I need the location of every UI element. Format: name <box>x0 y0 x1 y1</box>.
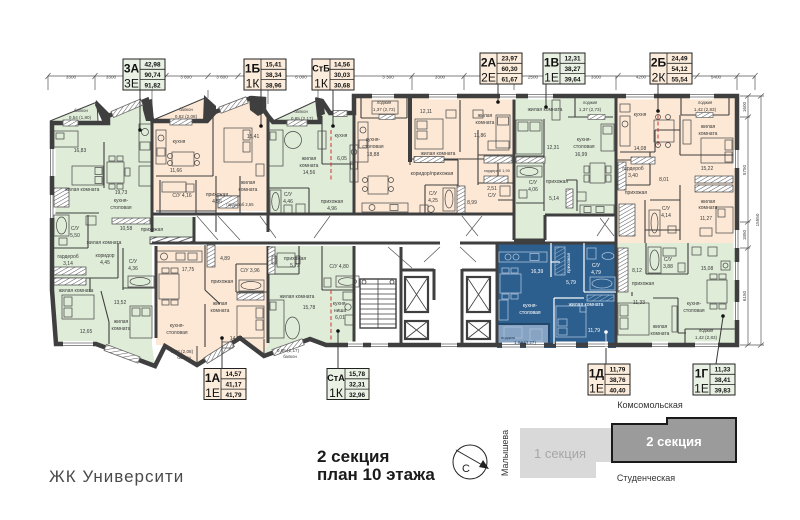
svg-text:12,11: 12,11 <box>420 109 432 115</box>
svg-text:4,46: 4,46 <box>283 199 293 205</box>
svg-text:4,45: 4,45 <box>100 260 110 266</box>
svg-text:38,34: 38,34 <box>266 72 282 79</box>
svg-text:11,27: 11,27 <box>700 216 712 222</box>
svg-text:1А: 1А <box>205 371 221 385</box>
svg-text:жилая комната: жилая комната <box>59 288 94 294</box>
svg-text:жилая комната: жилая комната <box>65 187 100 193</box>
svg-text:14,57: 14,57 <box>226 371 242 378</box>
svg-text:2 секция: 2 секция <box>317 447 389 466</box>
svg-text:жилая: жилая <box>701 124 716 130</box>
svg-text:5,79: 5,79 <box>566 280 576 286</box>
svg-text:план 10 этажа: план 10 этажа <box>317 465 435 484</box>
svg-text:14,56: 14,56 <box>303 170 316 176</box>
svg-text:1К: 1К <box>329 386 343 400</box>
svg-text:8,99: 8,99 <box>467 200 477 206</box>
svg-text:4200: 4200 <box>636 75 647 80</box>
svg-text:1Г: 1Г <box>695 367 709 381</box>
svg-text:23,97: 23,97 <box>502 56 518 63</box>
svg-text:1Е: 1Е <box>694 382 709 396</box>
svg-text:балкон: балкон <box>177 355 191 360</box>
svg-text:3 600: 3 600 <box>180 75 192 80</box>
svg-text:4,89: 4,89 <box>220 256 230 262</box>
svg-text:5400: 5400 <box>711 75 722 80</box>
svg-text:кухня-: кухня- <box>170 323 185 329</box>
svg-text:5,72: 5,72 <box>290 263 300 269</box>
svg-text:1 секция: 1 секция <box>534 446 586 461</box>
svg-text:12,31: 12,31 <box>547 145 560 151</box>
svg-text:38,96: 38,96 <box>266 82 282 89</box>
svg-text:С/У 4,80: С/У 4,80 <box>329 264 349 270</box>
svg-text:комната: комната <box>699 131 718 137</box>
svg-text:комната: комната <box>239 187 258 193</box>
svg-text:2 секция: 2 секция <box>646 434 701 449</box>
svg-text:18,88: 18,88 <box>367 152 380 158</box>
svg-text:С/У 4,16: С/У 4,16 <box>172 193 192 199</box>
svg-text:Комсомольская: Комсомольская <box>617 400 683 410</box>
svg-text:коридор/прихожая: коридор/прихожая <box>411 171 454 177</box>
svg-text:столовая: столовая <box>683 308 705 314</box>
svg-text:1К: 1К <box>314 77 328 91</box>
svg-text:0,54 (1,80): 0,54 (1,80) <box>69 115 92 120</box>
svg-text:0,65 (2,17): 0,65 (2,17) <box>277 348 300 353</box>
svg-text:4,06: 4,06 <box>528 187 538 193</box>
svg-text:лоджия: лоджия <box>501 335 515 340</box>
svg-text:комната: комната <box>651 331 670 337</box>
svg-text:2А: 2А <box>481 56 497 70</box>
svg-text:54,12: 54,12 <box>672 66 688 73</box>
svg-text:4,56: 4,56 <box>212 199 222 205</box>
svg-text:2К: 2К <box>652 71 666 85</box>
svg-text:3,40: 3,40 <box>628 173 638 179</box>
svg-text:38,41: 38,41 <box>715 377 731 384</box>
svg-text:прихожая: прихожая <box>546 179 569 185</box>
svg-text:15,08: 15,08 <box>701 266 714 272</box>
svg-text:0,62 (2,08): 0,62 (2,08) <box>175 114 198 119</box>
svg-text:0,62 (2,08): 0,62 (2,08) <box>171 349 194 354</box>
svg-text:балкон: балкон <box>283 354 297 359</box>
svg-text:1,37 (2,73): 1,37 (2,73) <box>373 107 396 112</box>
svg-text:41,79: 41,79 <box>226 392 242 399</box>
svg-text:6 000: 6 000 <box>295 75 307 80</box>
svg-text:прихожая: прихожая <box>625 190 648 196</box>
svg-text:1В: 1В <box>544 56 560 70</box>
svg-text:комната: комната <box>476 120 495 126</box>
svg-text:8,01: 8,01 <box>659 177 669 183</box>
svg-text:5750: 5750 <box>742 164 747 175</box>
svg-text:3Е: 3Е <box>124 77 139 91</box>
svg-text:12,31: 12,31 <box>565 56 581 63</box>
svg-text:лоджия: лоджия <box>698 100 713 105</box>
svg-text:11,33: 11,33 <box>715 367 731 374</box>
svg-text:столовая: столовая <box>573 144 595 150</box>
svg-text:1Е: 1Е <box>544 71 559 85</box>
svg-text:Малышева: Малышева <box>500 430 510 476</box>
svg-text:61,67: 61,67 <box>502 76 518 83</box>
svg-text:жилая: жилая <box>478 113 493 119</box>
svg-text:С: С <box>462 463 470 475</box>
svg-text:2Е: 2Е <box>481 71 496 85</box>
svg-text:11,33: 11,33 <box>633 300 645 306</box>
svg-text:5,50: 5,50 <box>70 233 80 239</box>
svg-text:4,14: 4,14 <box>661 213 671 219</box>
svg-text:32,31: 32,31 <box>349 382 365 389</box>
svg-text:3300: 3300 <box>66 75 77 80</box>
svg-text:комната: комната <box>112 326 131 332</box>
svg-text:лоджия: лоджия <box>377 100 392 105</box>
svg-text:19,73: 19,73 <box>115 190 128 196</box>
svg-text:С/У: С/У <box>129 259 138 265</box>
svg-text:60,30: 60,30 <box>502 66 518 73</box>
svg-text:комната: комната <box>300 163 319 169</box>
svg-text:С/У: С/У <box>429 191 438 197</box>
svg-text:гардероб: гардероб <box>622 166 643 172</box>
svg-text:С/У: С/У <box>284 192 293 198</box>
svg-text:1Д: 1Д <box>589 367 605 381</box>
svg-text:С/У: С/У <box>662 206 671 212</box>
svg-text:11,79: 11,79 <box>610 367 626 374</box>
svg-text:комната: комната <box>699 205 718 211</box>
svg-text:жилая: жилая <box>241 180 256 186</box>
svg-text:42,98: 42,98 <box>145 62 161 69</box>
svg-text:кухня-: кухня- <box>577 137 592 143</box>
svg-text:39,83: 39,83 <box>715 387 731 394</box>
svg-text:3 300: 3 300 <box>382 75 394 80</box>
svg-text:столовая: столовая <box>519 310 541 316</box>
svg-text:3,88: 3,88 <box>663 264 673 270</box>
svg-text:столовая: столовая <box>166 330 188 336</box>
svg-text:жилая: жилая <box>653 324 668 330</box>
svg-text:кухня-: кухня- <box>333 301 348 307</box>
svg-text:3 600: 3 600 <box>216 75 228 80</box>
svg-text:4,79: 4,79 <box>591 270 601 276</box>
svg-text:15,41: 15,41 <box>247 134 260 140</box>
svg-text:жилая комната: жилая комната <box>87 240 122 246</box>
svg-text:15550: 15550 <box>755 213 760 226</box>
svg-text:3,14: 3,14 <box>63 261 73 267</box>
svg-text:1Б: 1Б <box>245 62 261 76</box>
svg-text:жилая: жилая <box>213 301 228 307</box>
svg-text:Студенческая: Студенческая <box>617 473 675 483</box>
svg-text:55,54: 55,54 <box>672 76 688 83</box>
svg-text:15,78: 15,78 <box>349 371 365 378</box>
svg-text:прихожая: прихожая <box>566 252 571 273</box>
svg-text:прихожая: прихожая <box>141 227 164 233</box>
svg-text:41,17: 41,17 <box>226 382 242 389</box>
svg-text:24,49: 24,49 <box>672 56 688 63</box>
svg-text:гардероб 2,55: гардероб 2,55 <box>226 202 254 207</box>
svg-text:балкон: балкон <box>179 107 193 112</box>
svg-text:6,01: 6,01 <box>335 315 345 321</box>
svg-text:16,83: 16,83 <box>74 148 87 154</box>
svg-text:кухня: кухня <box>335 133 348 139</box>
svg-text:столовая: столовая <box>110 205 132 211</box>
svg-text:0,65 (2,17): 0,65 (2,17) <box>291 116 314 121</box>
svg-text:2,51: 2,51 <box>487 186 497 192</box>
svg-text:кухня: кухня <box>634 112 647 118</box>
svg-text:2500: 2500 <box>528 75 539 80</box>
svg-text:30,03: 30,03 <box>334 72 350 79</box>
svg-text:4,96: 4,96 <box>327 206 337 212</box>
svg-text:лоджия: лоджия <box>699 328 714 333</box>
svg-text:СтА: СтА <box>327 373 345 383</box>
svg-text:1,64 (3,27): 1,64 (3,27) <box>514 340 536 345</box>
svg-text:5,14: 5,14 <box>549 196 559 202</box>
svg-text:СтБ: СтБ <box>312 64 330 74</box>
svg-text:14,08: 14,08 <box>634 146 647 152</box>
svg-text:1Е: 1Е <box>205 386 220 400</box>
svg-text:С/У: С/У <box>592 263 601 269</box>
svg-text:жилая: жилая <box>302 156 317 162</box>
svg-text:1Е: 1Е <box>589 382 604 396</box>
svg-text:кухня-: кухня- <box>687 301 702 307</box>
svg-text:1850: 1850 <box>742 229 747 240</box>
svg-text:11,79: 11,79 <box>588 328 600 334</box>
svg-text:ЖК Университи: ЖК Университи <box>49 467 184 486</box>
svg-text:1,42 (2,83): 1,42 (2,83) <box>695 335 718 340</box>
svg-text:кухня-: кухня- <box>114 198 129 204</box>
svg-text:15,41: 15,41 <box>266 62 282 69</box>
svg-text:91,82: 91,82 <box>145 82 161 89</box>
svg-text:38,27: 38,27 <box>565 66 581 73</box>
svg-text:гардероб: гардероб <box>57 254 78 260</box>
svg-text:32,96: 32,96 <box>349 392 365 399</box>
svg-text:жилая комната: жилая комната <box>569 302 604 308</box>
svg-text:6150: 6150 <box>742 290 747 301</box>
svg-text:13,52: 13,52 <box>114 300 127 306</box>
svg-text:14,56: 14,56 <box>334 62 350 69</box>
svg-text:С/У: С/У <box>664 257 673 263</box>
svg-text:коридор: коридор <box>95 253 114 259</box>
svg-text:1,37 (2,73): 1,37 (2,73) <box>579 107 602 112</box>
svg-text:12,65: 12,65 <box>80 329 93 335</box>
svg-text:комната: комната <box>211 308 230 314</box>
svg-text:жилая: жилая <box>114 319 129 325</box>
svg-text:8,12: 8,12 <box>632 268 642 274</box>
svg-text:прихожая: прихожая <box>211 279 234 285</box>
svg-text:прихожая: прихожая <box>284 256 307 262</box>
svg-text:3300: 3300 <box>106 75 117 80</box>
svg-text:балкон: балкон <box>74 108 88 113</box>
svg-text:15,22: 15,22 <box>701 166 714 172</box>
svg-text:15,78: 15,78 <box>303 305 316 311</box>
svg-text:С/У: С/У <box>529 180 538 186</box>
svg-text:гардероб 1,90: гардероб 1,90 <box>484 168 511 173</box>
svg-text:ниша: ниша <box>334 308 347 314</box>
svg-text:4,25: 4,25 <box>428 198 438 204</box>
svg-text:С/У: С/У <box>71 226 80 232</box>
svg-text:16,39: 16,39 <box>531 269 544 275</box>
svg-text:С/У 3,96: С/У 3,96 <box>240 268 260 274</box>
svg-text:балкон: балкон <box>294 109 308 114</box>
svg-text:4,36: 4,36 <box>128 266 138 272</box>
svg-text:14,57: 14,57 <box>230 336 243 342</box>
svg-text:3300: 3300 <box>435 75 446 80</box>
svg-text:38,76: 38,76 <box>610 377 626 384</box>
svg-text:прихожая: прихожая <box>206 192 229 198</box>
svg-text:3300: 3300 <box>591 75 602 80</box>
svg-text:11,86: 11,86 <box>474 133 486 139</box>
svg-text:1,42 (2,83): 1,42 (2,83) <box>694 107 717 112</box>
svg-text:кухня-: кухня- <box>523 303 538 309</box>
svg-text:2Б: 2Б <box>651 56 667 70</box>
svg-text:столовая: столовая <box>362 144 384 150</box>
svg-text:кухня: кухня <box>173 139 186 145</box>
svg-text:прихожая: прихожая <box>321 199 344 205</box>
svg-text:30,68: 30,68 <box>334 82 350 89</box>
svg-text:39,64: 39,64 <box>565 76 581 83</box>
svg-text:жилая комната: жилая комната <box>421 151 456 157</box>
svg-text:лоджия: лоджия <box>583 100 598 105</box>
svg-text:17,75: 17,75 <box>182 267 195 273</box>
svg-text:40,40: 40,40 <box>610 387 626 394</box>
svg-text:10,58: 10,58 <box>120 226 133 232</box>
svg-text:6,05: 6,05 <box>337 156 347 162</box>
svg-text:16,99: 16,99 <box>575 152 588 158</box>
svg-text:3А: 3А <box>124 62 140 76</box>
svg-text:90,74: 90,74 <box>145 72 161 79</box>
svg-text:С/У: С/У <box>488 193 497 199</box>
svg-text:жилая комната: жилая комната <box>280 294 315 300</box>
svg-text:прихожая: прихожая <box>632 281 655 287</box>
svg-text:1К: 1К <box>246 77 260 91</box>
svg-text:1600: 1600 <box>742 101 747 112</box>
svg-text:кухня-: кухня- <box>366 137 381 143</box>
svg-text:11,66: 11,66 <box>170 168 182 174</box>
